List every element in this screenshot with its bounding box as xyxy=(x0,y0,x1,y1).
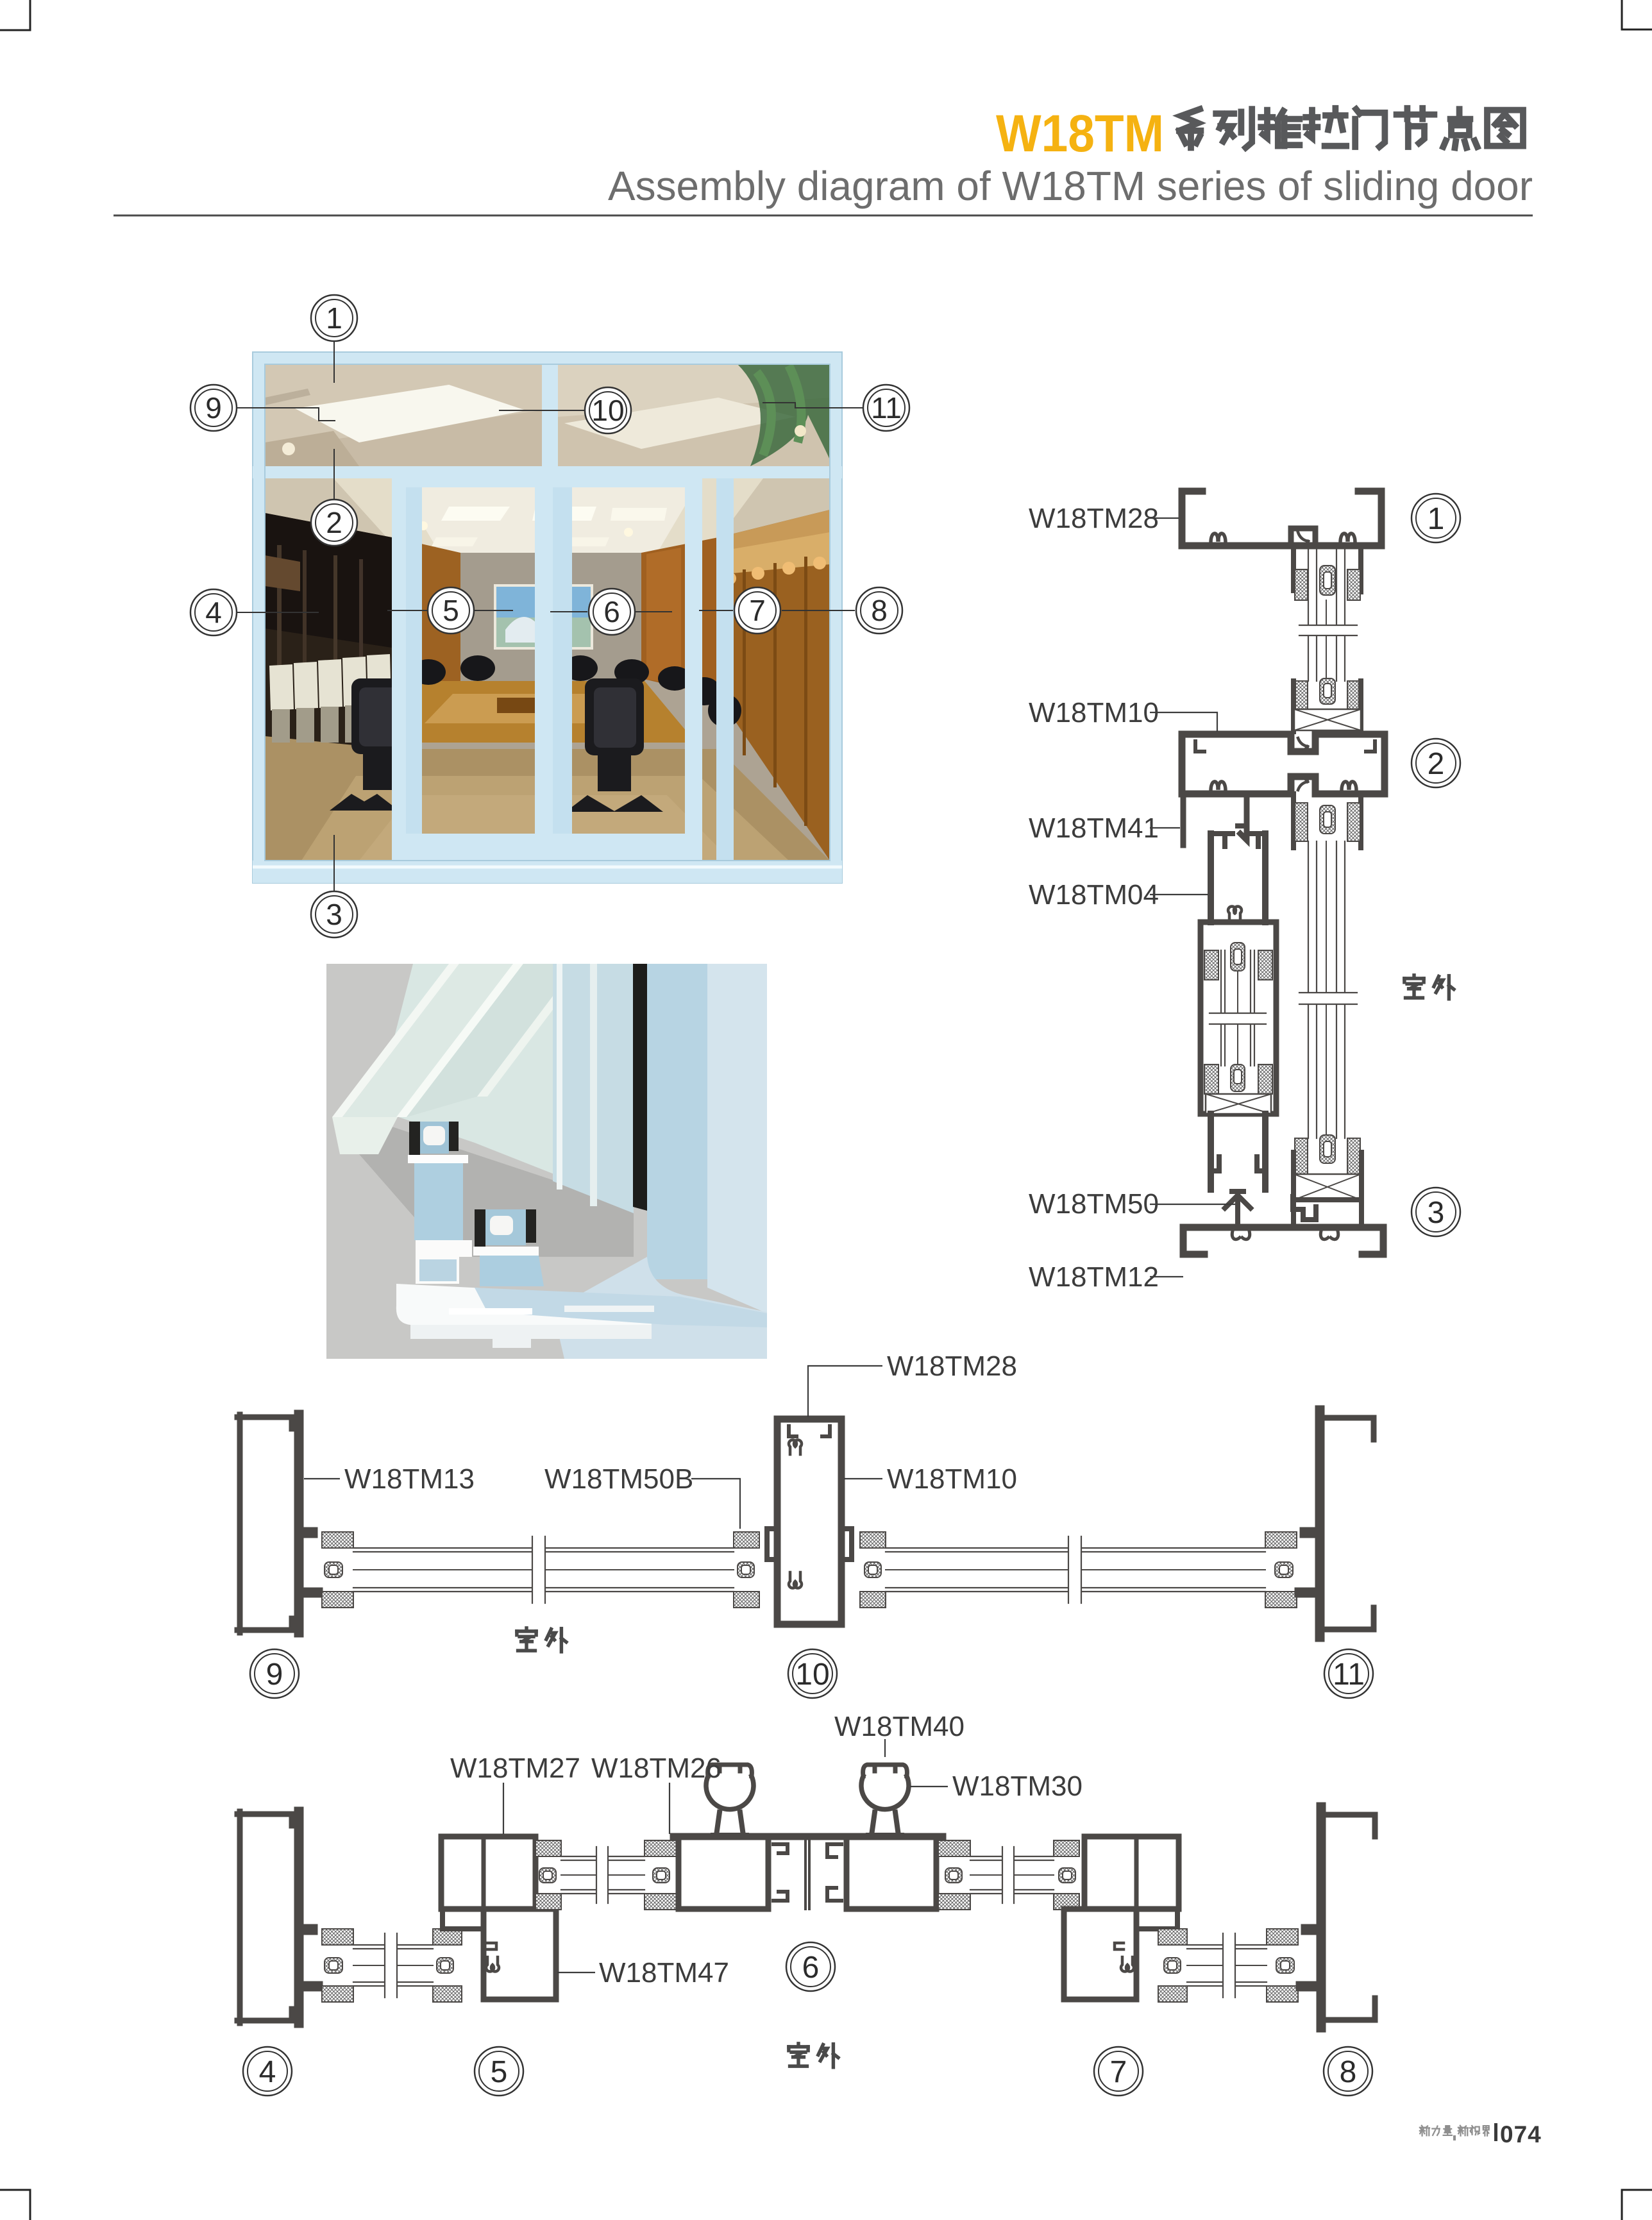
svg-text:3: 3 xyxy=(1428,1196,1445,1230)
svg-text:1: 1 xyxy=(326,301,342,335)
svg-text:2: 2 xyxy=(1428,747,1445,781)
svg-text:W18TM28: W18TM28 xyxy=(887,1350,1017,1382)
svg-text:8: 8 xyxy=(871,594,888,627)
svg-text:W18TM30: W18TM30 xyxy=(952,1770,1083,1802)
svg-text:W18TM47: W18TM47 xyxy=(599,1957,729,1989)
svg-text:9: 9 xyxy=(266,1658,283,1692)
svg-text:2: 2 xyxy=(326,506,342,539)
svg-text:W18TM04: W18TM04 xyxy=(1029,879,1159,911)
svg-text:7: 7 xyxy=(749,594,766,627)
svg-text:11: 11 xyxy=(1333,1658,1365,1692)
svg-text:W18TM13: W18TM13 xyxy=(344,1463,475,1495)
svg-text:W18TM10: W18TM10 xyxy=(1029,697,1159,728)
svg-text:5: 5 xyxy=(491,2055,508,2089)
svg-text:W18TM26: W18TM26 xyxy=(591,1753,721,1784)
svg-text:5: 5 xyxy=(442,594,459,627)
svg-text:W18TM27: W18TM27 xyxy=(450,1753,580,1784)
svg-text:W18TM28: W18TM28 xyxy=(1029,503,1159,534)
svg-text:W18TM41: W18TM41 xyxy=(1029,812,1159,844)
svg-text:8: 8 xyxy=(1340,2055,1357,2089)
svg-text:074: 074 xyxy=(1500,2121,1542,2148)
svg-text:Assembly diagram of W18TM seri: Assembly diagram of W18TM series of slid… xyxy=(608,163,1533,209)
svg-text:1: 1 xyxy=(1428,502,1445,536)
svg-text:4: 4 xyxy=(205,596,222,629)
svg-text:10: 10 xyxy=(795,1658,829,1692)
svg-text:9: 9 xyxy=(205,391,222,425)
svg-text:6: 6 xyxy=(603,595,620,628)
svg-text:W18TM12: W18TM12 xyxy=(1029,1261,1159,1293)
svg-text:4: 4 xyxy=(259,2055,276,2089)
svg-text:W18TM50B: W18TM50B xyxy=(544,1463,693,1495)
svg-text:3: 3 xyxy=(326,898,342,931)
svg-text:11: 11 xyxy=(871,391,902,425)
svg-text:10: 10 xyxy=(591,394,624,427)
svg-text:W18TM10: W18TM10 xyxy=(887,1463,1017,1495)
svg-text:W18TM: W18TM xyxy=(996,105,1164,163)
svg-text:W18TM50: W18TM50 xyxy=(1029,1188,1159,1220)
svg-text:6: 6 xyxy=(802,1951,820,1985)
svg-text:7: 7 xyxy=(1110,2055,1127,2089)
svg-text:W18TM40: W18TM40 xyxy=(834,1711,965,1742)
